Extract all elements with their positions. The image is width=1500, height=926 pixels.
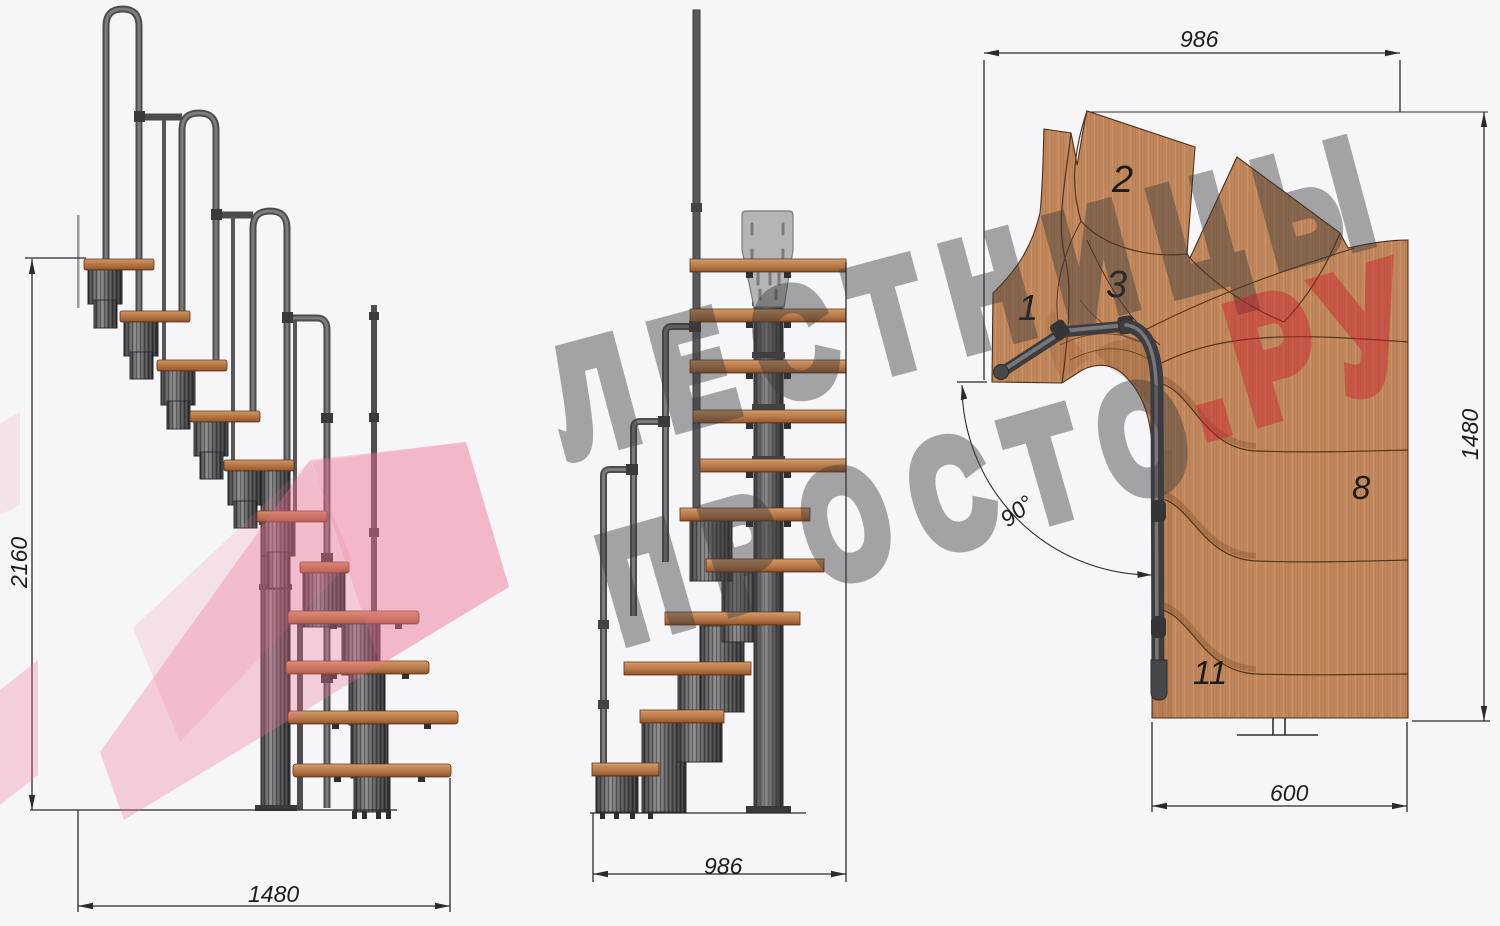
svg-text:2160: 2160 [6, 537, 32, 589]
svg-text:1480: 1480 [1457, 409, 1483, 460]
svg-text:986: 986 [1180, 26, 1219, 52]
svg-text:11: 11 [1193, 654, 1227, 691]
svg-text:986: 986 [704, 853, 743, 879]
svg-text:600: 600 [1270, 780, 1309, 806]
svg-text:8: 8 [1352, 469, 1371, 506]
svg-text:1480: 1480 [248, 881, 299, 907]
